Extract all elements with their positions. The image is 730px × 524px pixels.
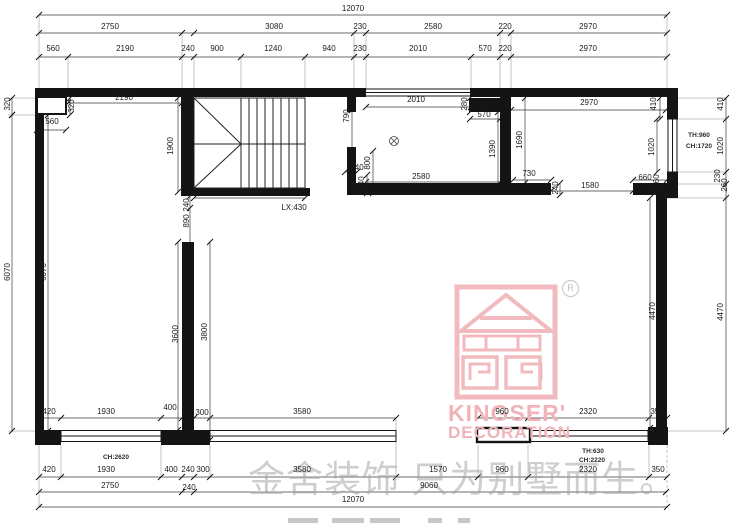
dim-label: 960 bbox=[495, 466, 508, 474]
dim-label: 6070 bbox=[4, 263, 12, 281]
dim-label: 560 bbox=[46, 45, 59, 53]
dim-label: 1930 bbox=[97, 408, 115, 416]
logo-sub-text: DECORATION bbox=[448, 423, 562, 443]
dim-label: 3580 bbox=[293, 466, 311, 474]
dim-label: 3580 bbox=[293, 408, 311, 416]
dim-label: 420 bbox=[42, 408, 55, 416]
dim-label: 2140 bbox=[239, 188, 257, 196]
dim-label: 2190 bbox=[116, 45, 134, 53]
dim-label: 2010 bbox=[409, 45, 427, 53]
watermark-text: 金舍装饰 只为别墅而生。 bbox=[248, 449, 677, 503]
cropped-caption-mark bbox=[332, 518, 364, 523]
dim-label: 2580 bbox=[412, 173, 430, 181]
dim-label: TH:630 bbox=[582, 449, 604, 456]
dim-label: 400 bbox=[164, 466, 177, 474]
dim-label: 730 bbox=[522, 170, 535, 178]
dim-label: 9060 bbox=[420, 482, 438, 490]
dim-label: 940 bbox=[322, 45, 335, 53]
dim-label: 1570 bbox=[429, 466, 447, 474]
dim-label: 1020 bbox=[648, 138, 656, 156]
dim-label: 240 bbox=[182, 484, 195, 492]
dim-label: 1390 bbox=[489, 140, 497, 158]
dim-label: 2750 bbox=[101, 23, 119, 31]
dim-label: LX:430 bbox=[281, 204, 306, 212]
dim-label: 1240 bbox=[264, 45, 282, 53]
dimension-lines bbox=[9, 12, 729, 510]
dim-label: 2320 bbox=[579, 466, 597, 474]
dim-label: 570 bbox=[478, 45, 491, 53]
cropped-caption-mark bbox=[428, 518, 442, 523]
dim-label: 2010 bbox=[407, 96, 425, 104]
dim-label: 400 bbox=[163, 404, 176, 412]
registered-trademark-icon: R bbox=[562, 280, 579, 297]
dim-label: 2580 bbox=[424, 23, 442, 31]
dim-label: 900 bbox=[210, 45, 223, 53]
dim-label: 1930 bbox=[97, 466, 115, 474]
walls bbox=[35, 88, 678, 445]
dim-label: CH:1720 bbox=[686, 144, 712, 151]
wall-notch bbox=[37, 97, 66, 114]
kingser-logo-icon bbox=[457, 287, 555, 397]
dim-label: 320 bbox=[68, 99, 76, 112]
dim-label: 240 bbox=[181, 466, 194, 474]
dim-label: 3080 bbox=[265, 23, 283, 31]
cropped-caption-mark bbox=[370, 518, 400, 523]
dim-label: 350 bbox=[650, 408, 663, 416]
dim-label: 790 bbox=[343, 109, 351, 122]
dim-label: 230 bbox=[353, 45, 366, 53]
dim-label: 2970 bbox=[580, 99, 598, 107]
dim-label: 240 bbox=[350, 164, 363, 172]
dim-label: 230 bbox=[353, 23, 366, 31]
dim-label: 890 bbox=[183, 214, 191, 227]
dim-label: 1020 bbox=[717, 137, 725, 155]
floor-plan-canvas: 金舍装饰 只为别墅而生。 KINGSER' DECORATION R 12070… bbox=[0, 0, 730, 524]
cropped-caption-mark bbox=[288, 518, 318, 523]
dim-label: 560 bbox=[45, 118, 58, 126]
drain-symbol-icon bbox=[390, 137, 399, 146]
dim-label: 2320 bbox=[579, 408, 597, 416]
dim-label: 420 bbox=[42, 466, 55, 474]
dim-label: 2750 bbox=[101, 482, 119, 490]
dim-label: 280 bbox=[461, 97, 469, 110]
dim-label: 260 bbox=[653, 174, 661, 187]
dim-label: CH:2220 bbox=[579, 458, 605, 465]
dim-label: 1900 bbox=[167, 137, 175, 155]
dim-label: 960 bbox=[495, 408, 508, 416]
dim-label: 1690 bbox=[516, 131, 524, 149]
dim-label: 240 bbox=[552, 181, 560, 194]
dim-label: 4470 bbox=[717, 303, 725, 321]
dim-label: 12070 bbox=[342, 496, 364, 504]
dim-label: 410 bbox=[650, 97, 658, 110]
cropped-caption-mark bbox=[458, 518, 470, 523]
dim-label: 6070 bbox=[40, 263, 48, 281]
dim-label: 1580 bbox=[581, 182, 599, 190]
dim-label: 320 bbox=[4, 97, 12, 110]
dim-label: 3800 bbox=[201, 323, 209, 341]
dim-label: 4470 bbox=[649, 302, 657, 320]
dim-label: 350 bbox=[651, 466, 664, 474]
dim-label: CH:2620 bbox=[103, 455, 129, 462]
dim-label: 2970 bbox=[579, 23, 597, 31]
dim-label: 260 bbox=[721, 178, 729, 191]
dim-label: 220 bbox=[498, 23, 511, 31]
dim-label: 2970 bbox=[579, 45, 597, 53]
dim-label: 300 bbox=[196, 466, 209, 474]
dim-label: 300 bbox=[195, 409, 208, 417]
dim-label: 800 bbox=[364, 156, 372, 169]
dim-label: 220 bbox=[498, 45, 511, 53]
dim-label: 240 bbox=[183, 198, 191, 211]
windows bbox=[61, 89, 678, 442]
dim-label: 2190 bbox=[115, 94, 133, 102]
dim-label: 3600 bbox=[172, 325, 180, 343]
dim-label: 410 bbox=[717, 97, 725, 110]
dim-label: 12070 bbox=[342, 5, 364, 13]
floor-plan-drawing bbox=[0, 0, 730, 524]
dim-label: 570 bbox=[477, 111, 490, 119]
dim-label: TH:960 bbox=[688, 133, 710, 140]
staircase bbox=[194, 98, 305, 188]
dim-label: 660 bbox=[638, 174, 651, 182]
dim-label: 340 bbox=[358, 176, 366, 189]
dim-label: 240 bbox=[181, 45, 194, 53]
